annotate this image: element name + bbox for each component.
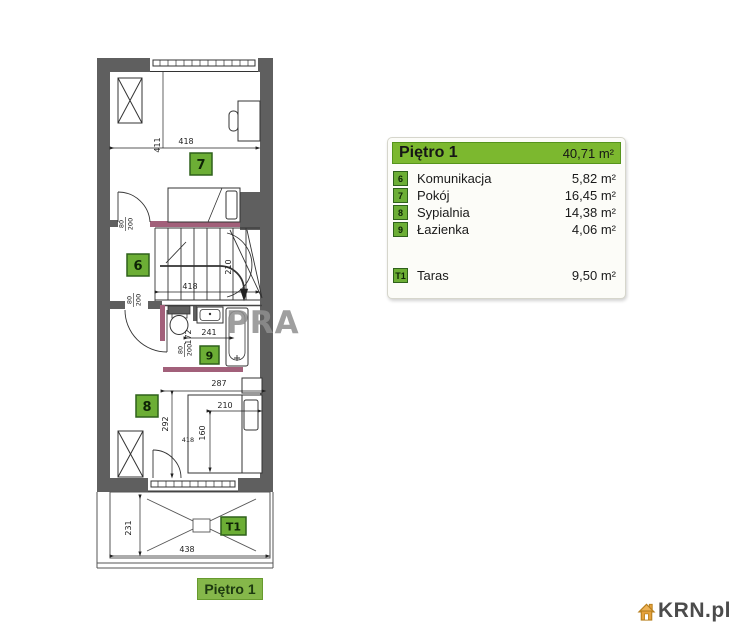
window-bottom bbox=[148, 478, 238, 492]
dim-room8-mid: 418 bbox=[182, 436, 194, 444]
door-arc-terrace bbox=[153, 450, 181, 478]
stairs-cut-line bbox=[166, 242, 186, 263]
dim-bath-depth: 172 bbox=[184, 329, 193, 344]
dim-stairs-width: 210 bbox=[224, 259, 233, 274]
legend-room-area: 9,50 m² bbox=[572, 268, 616, 283]
dim-room7-width: 418 bbox=[178, 137, 193, 146]
legend-badge-7: 7 bbox=[393, 188, 408, 203]
svg-text:80: 80 bbox=[118, 220, 126, 228]
terrace-cross-center bbox=[193, 519, 210, 532]
svg-text:80: 80 bbox=[126, 296, 134, 304]
stairs bbox=[155, 228, 262, 301]
closet-x-symbol-bottom bbox=[118, 431, 143, 477]
dim-terrace-width: 438 bbox=[179, 545, 194, 554]
legend-room-area: 4,06 m² bbox=[572, 222, 616, 237]
legend-room-area: 16,45 m² bbox=[565, 188, 616, 203]
svg-text:210: 210 bbox=[224, 259, 233, 274]
legend-row-komunikacja: 6 Komunikacja 5,82 m² bbox=[392, 170, 621, 187]
legend-row-sypialnia: 8 Sypialnia 14,38 m² bbox=[392, 204, 621, 221]
legend-header: Piętro 1 40,71 m² bbox=[392, 142, 621, 164]
watermark-text: PRA bbox=[226, 305, 300, 341]
pillow-room8 bbox=[244, 400, 258, 430]
chair bbox=[229, 111, 238, 131]
dim-room8-height: 292 bbox=[161, 416, 170, 431]
legend-badge-8: 8 bbox=[393, 205, 408, 220]
legend-row-taras: T1 Taras 9,50 m² bbox=[392, 267, 621, 284]
svg-text:8: 8 bbox=[142, 400, 151, 415]
floorplan-page: 418 411 210 418 241 172 287 210 160 418 … bbox=[0, 0, 740, 636]
legend-room-area: 14,38 m² bbox=[565, 205, 616, 220]
dim-terrace-depth: 231 bbox=[124, 520, 133, 535]
svg-text:T1: T1 bbox=[226, 521, 241, 534]
legend-room-name: Sypialnia bbox=[417, 205, 565, 220]
dim-bath-width: 241 bbox=[201, 328, 216, 337]
wall-interior-r7 bbox=[240, 192, 260, 230]
wall-left bbox=[97, 58, 110, 492]
accent-wall-bath-left bbox=[160, 305, 165, 341]
legend-rows: 6 Komunikacja 5,82 m² 7 Pokój 16,45 m² 8… bbox=[392, 170, 621, 284]
wall-stub-c bbox=[148, 301, 162, 309]
legend-panel: Piętro 1 40,71 m² 6 Komunikacja 5,82 m² … bbox=[387, 137, 626, 299]
svg-text:6: 6 bbox=[133, 259, 142, 274]
legend-room-name: Łazienka bbox=[417, 222, 572, 237]
bed-room7 bbox=[168, 188, 240, 222]
floor-label: Piętro 1 bbox=[197, 578, 263, 600]
dim-room7-height: 411 bbox=[153, 137, 162, 152]
svg-text:200: 200 bbox=[186, 344, 194, 356]
legend-room-name: Komunikacja bbox=[417, 171, 572, 186]
legend-title: Piętro 1 bbox=[399, 144, 563, 162]
window-top bbox=[150, 58, 258, 72]
svg-text:200: 200 bbox=[127, 218, 135, 230]
desk bbox=[229, 101, 260, 141]
dim-bed-length: 210 bbox=[217, 401, 232, 410]
dim-door-hall: 80 200 bbox=[126, 293, 143, 307]
room-badge-8: 8 bbox=[136, 395, 158, 417]
room-badge-t1: T1 bbox=[221, 517, 246, 535]
closet-x-symbol-top bbox=[118, 78, 142, 123]
house-icon bbox=[637, 600, 656, 622]
legend-room-name: Taras bbox=[417, 268, 572, 283]
svg-text:80: 80 bbox=[177, 346, 185, 354]
legend-badge-t1: T1 bbox=[393, 268, 408, 283]
svg-text:172: 172 bbox=[184, 329, 193, 344]
floor-plan-drawing: 418 411 210 418 241 172 287 210 160 418 … bbox=[0, 0, 740, 636]
legend-total-area: 40,71 m² bbox=[563, 146, 614, 161]
accent-wall-bath-bottom bbox=[163, 367, 243, 372]
door-arc-room7 bbox=[118, 192, 150, 222]
legend-room-name: Pokój bbox=[417, 188, 565, 203]
window-bottom-frame bbox=[151, 481, 235, 487]
room-badge-6: 6 bbox=[127, 254, 149, 276]
room-badge-9: 9 bbox=[200, 346, 219, 364]
dim-stairs-length: 418 bbox=[182, 282, 197, 291]
dim-bed-width: 160 bbox=[198, 425, 207, 440]
svg-text:9: 9 bbox=[206, 350, 214, 363]
svg-text:292: 292 bbox=[161, 416, 170, 431]
legend-badge-6: 6 bbox=[393, 171, 408, 186]
dim-door-room7: 80 200 bbox=[118, 217, 135, 231]
svg-text:231: 231 bbox=[124, 520, 133, 535]
svg-text:200: 200 bbox=[135, 294, 143, 306]
sink bbox=[197, 307, 223, 323]
legend-row-pokoj: 7 Pokój 16,45 m² bbox=[392, 187, 621, 204]
krn-logo: KRN.pl bbox=[637, 599, 731, 623]
pillow-room7 bbox=[226, 191, 237, 219]
svg-text:7: 7 bbox=[196, 158, 205, 173]
legend-badge-9: 9 bbox=[393, 222, 408, 237]
dim-room8-width: 287 bbox=[211, 379, 226, 388]
svg-text:160: 160 bbox=[198, 425, 207, 440]
wall-stub-b bbox=[110, 301, 125, 309]
legend-room-area: 5,82 m² bbox=[572, 171, 616, 186]
wall-stub-bath bbox=[193, 305, 197, 321]
dim-door-bath: 80 200 bbox=[177, 343, 194, 357]
svg-text:411: 411 bbox=[153, 137, 162, 152]
room-badge-7: 7 bbox=[190, 153, 212, 175]
legend-row-lazienka: 9 Łazienka 4,06 m² bbox=[392, 221, 621, 238]
logo-text: KRN.pl bbox=[658, 599, 731, 623]
